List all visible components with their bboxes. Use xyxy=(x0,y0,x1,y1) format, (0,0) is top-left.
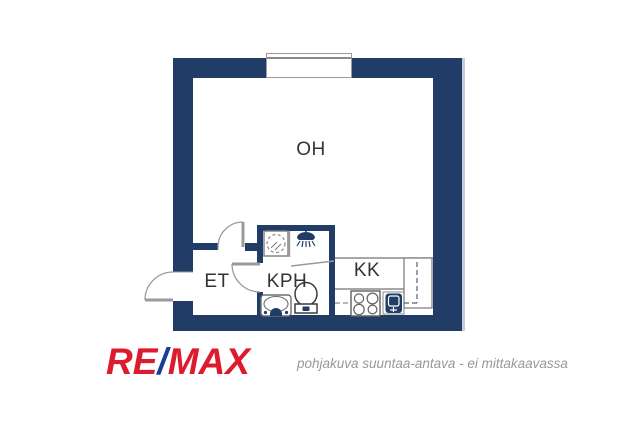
floorplan-canvas: OH ET KPH KK RE/MAX pohjakuva suuntaa-an… xyxy=(0,0,640,427)
room-label-et: ET xyxy=(200,272,234,291)
entrance-door-icon xyxy=(145,272,193,300)
washing-machine-icon xyxy=(264,231,288,256)
room-label-oh: OH xyxy=(294,140,328,159)
room-label-kk: KK xyxy=(352,261,382,280)
tall-cabinet-icon xyxy=(404,258,432,308)
remax-logo-re: RE xyxy=(106,341,157,382)
room-label-kph: KPH xyxy=(263,272,311,291)
remax-logo-slash: / xyxy=(157,341,167,382)
shower-icon xyxy=(297,228,315,247)
washbasin-icon xyxy=(261,295,291,316)
kitchen-sink-icon xyxy=(383,292,404,314)
disclaimer-text: pohjakuva suuntaa-antava - ei mittakaava… xyxy=(297,356,557,372)
remax-logo: RE/MAX xyxy=(106,344,250,380)
interior-door-oh-et-icon xyxy=(218,222,243,250)
remax-logo-max: MAX xyxy=(168,341,250,382)
stove-icon xyxy=(351,291,380,316)
interior-door-kph-icon xyxy=(232,264,260,292)
